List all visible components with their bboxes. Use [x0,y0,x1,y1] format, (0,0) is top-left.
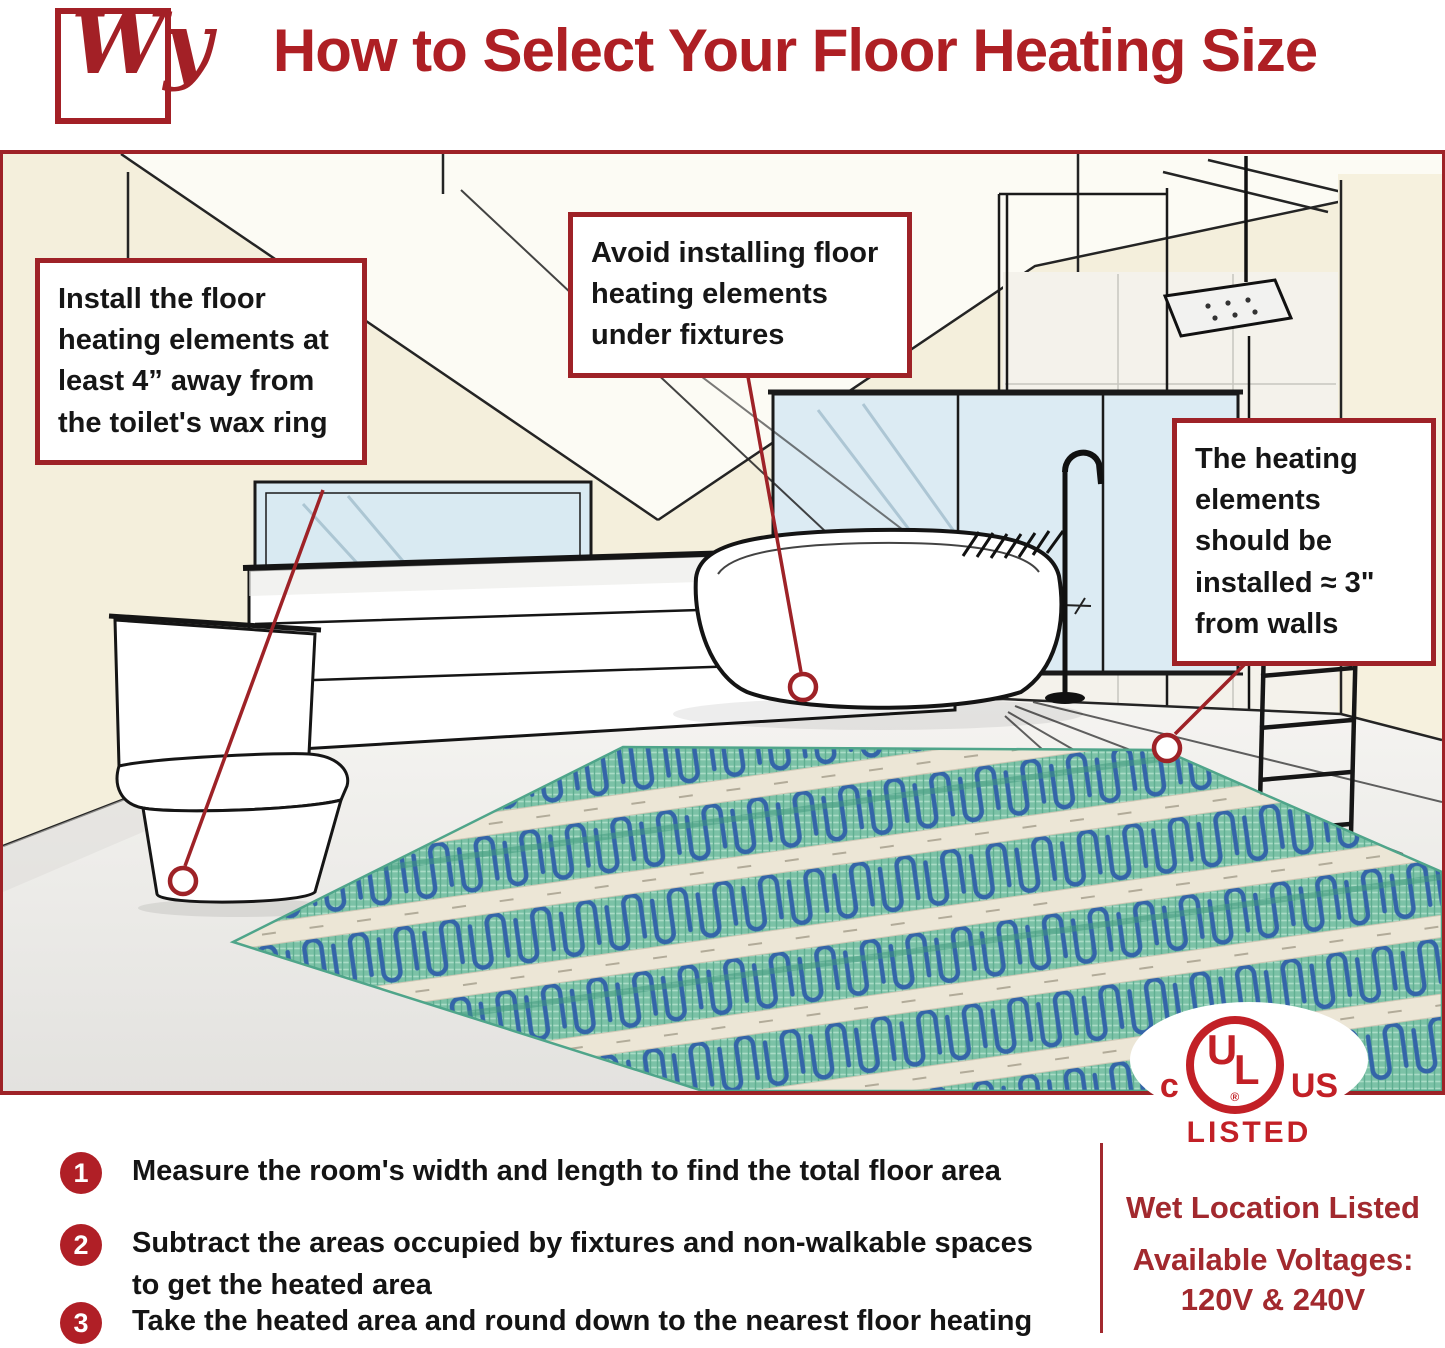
marker-toilet-icon [170,868,196,894]
voltages-value: 120V & 240V [1112,1282,1434,1318]
step-1-badge: 1 [60,1152,102,1194]
ul-letter-u: U [1207,1026,1237,1074]
voltages-label: Available Voltages: [1112,1242,1434,1278]
section-divider [1100,1143,1103,1333]
callout-avoid-fixtures: Avoid installing floor heating elements … [568,212,912,378]
marker-tub-icon [790,674,816,700]
ul-circle-icon: U L ® [1186,1016,1284,1114]
ul-listed-logo: c U L ® US LISTED [1118,1000,1380,1176]
step-row-1: 1 Measure the room's width and length to… [60,1150,1060,1194]
ul-listed-label: LISTED [1118,1116,1380,1150]
step-2-badge: 2 [60,1224,102,1266]
step-1-text: Measure the room's width and length to f… [132,1150,1001,1192]
ul-letter-l: L [1234,1046,1260,1094]
ul-us-label: US [1291,1067,1338,1106]
wet-location-label: Wet Location Listed [1112,1190,1434,1226]
certification-column: Wet Location Listed Available Voltages: … [1112,1190,1434,1318]
callout-toilet-clearance: Install the floor heating elements at le… [35,258,367,465]
brand-logo: Wy [55,8,171,124]
callout-wall-clearance: The heating elements should be installed… [1172,418,1436,666]
step-2-text: Subtract the areas occupied by fixtures … [132,1222,1052,1306]
brand-logo-script: Wy [71,2,212,86]
ul-canada-label: c [1160,1067,1179,1106]
marker-wall-icon [1154,735,1180,761]
infographic-page: Wy How to Select Your Floor Heating Size [0,0,1445,1348]
step-row-2: 2 Subtract the areas occupied by fixture… [60,1222,1060,1306]
registered-mark-icon: ® [1230,1090,1239,1104]
step-3-badge: 3 [60,1302,102,1344]
page-title: How to Select Your Floor Heating Size [215,16,1375,85]
step-3-text: Take the heated area and round down to t… [132,1300,1052,1348]
step-row-3: 3 Take the heated area and round down to… [60,1300,1060,1348]
